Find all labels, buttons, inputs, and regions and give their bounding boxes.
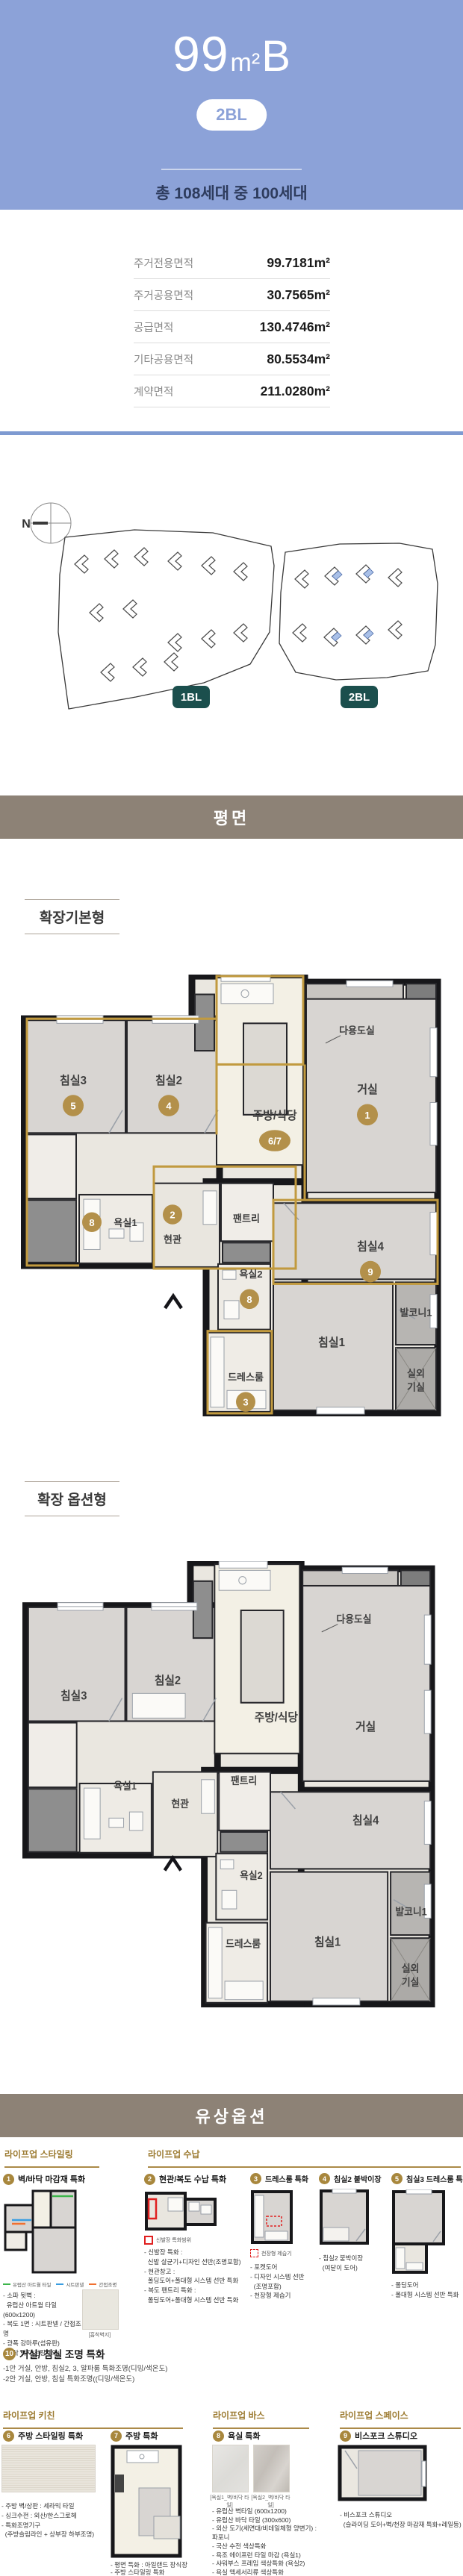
option-item-4: 4 침실2 붙박이장 <box>319 2173 382 2184</box>
option-number-badge: 3 <box>250 2173 261 2184</box>
row-value: 99.7181m² <box>267 255 330 271</box>
room-bed3: 침실3 <box>60 1689 87 1702</box>
room-bath2: 욕실2 <box>240 1870 263 1881</box>
room-living: 거실 <box>357 1084 378 1096</box>
row-label: 기타공용면적 <box>134 351 193 367</box>
room-dress: 드레스룸 <box>228 1372 264 1383</box>
row-label: 주거전용면적 <box>134 255 193 271</box>
mini-plan-entry-storage <box>144 2189 217 2232</box>
room-bed4: 침실4 <box>357 1240 384 1253</box>
option-number-badge: 6 <box>3 2430 14 2442</box>
group-header-bath: 라이프업 바스 <box>213 2409 309 2429</box>
room-outdoor: 실외 <box>407 1367 425 1379</box>
household-count: 총 108세대 중 100세대 <box>0 181 463 204</box>
svg-text:4: 4 <box>166 1101 172 1112</box>
legend-label: 시트판넬 <box>66 2280 84 2288</box>
legend-label: 신발장 특화범위 <box>156 2236 191 2244</box>
room-outdoor: 기실 <box>407 1381 425 1392</box>
svg-text:2BL: 2BL <box>349 691 370 704</box>
option-9-bullets: - 비스포크 스튜디오 (슬라이딩 도어+벽/천장 마감재 특화+레일등) <box>340 2510 463 2530</box>
option-number-badge: 9 <box>340 2430 351 2442</box>
block-badge: 2BL <box>196 99 267 131</box>
option-number-badge: 5 <box>391 2173 403 2184</box>
option-item-7: 7 주방 특화 <box>111 2430 158 2442</box>
option-title: 현관/복도 수납 특화 <box>159 2173 226 2185</box>
option-10-bullets: -1안 거실, 안방, 침실2, 3, 알파룸 특화조명(디밍/색온도) -2안… <box>3 2364 317 2386</box>
header-divider <box>161 169 302 170</box>
option-title: 드레스룸 특화 <box>265 2173 308 2184</box>
mini-plan-bed3-dress <box>391 2189 446 2275</box>
shoe-closet-legend: 신발장 특화범위 <box>144 2236 191 2245</box>
room-balcony: 발코니1 <box>400 1307 432 1318</box>
wallpaper-sample-caption: [흡착벽지] <box>79 2331 120 2339</box>
site-block2-outline <box>279 543 438 680</box>
option-item-6: 6 주방 스타일링 특화 <box>3 2430 83 2442</box>
compass-icon: N <box>22 503 71 543</box>
option-3-bullets: - 포켓도어 - 디자인 시스템 선반 (조명포함) - 천장형 제습기 <box>250 2263 317 2301</box>
plan-option-title: 확장 옵션형 <box>25 1481 119 1516</box>
option-8-bullets: - 유럽산 벽타일 (600x1200) - 유럽산 바닥 타일 (300x60… <box>212 2507 324 2576</box>
room-kitchen: 주방/식당 <box>252 1109 296 1122</box>
wallpaper-sample-image <box>82 2289 119 2330</box>
svg-text:1: 1 <box>364 1110 370 1121</box>
room-living: 거실 <box>355 1721 376 1734</box>
option-title: 벽/바닥 마감재 특화 <box>18 2173 85 2185</box>
option-number-badge: 8 <box>213 2430 224 2442</box>
room-bath1: 욕실1 <box>114 1217 137 1228</box>
svg-text:8: 8 <box>246 1294 252 1305</box>
svg-text:6/7: 6/7 <box>268 1135 282 1146</box>
plan-basic-title: 확장기본형 <box>25 899 119 934</box>
table-row: 주거전용면적 99.7181m² <box>134 247 330 279</box>
option-item-2: 2 현관/복도 수납 특화 <box>144 2173 226 2185</box>
room-pantry: 팬트리 <box>231 1775 257 1786</box>
room-utility: 다용도실 <box>336 1613 371 1625</box>
floor-plan-option: 침실3 침실2 주방/식당 거실 욕실1 현관 팬트리 침실4 욕실2 발코니1… <box>22 1561 435 2007</box>
area-table: 주거전용면적 99.7181m² 주거공용면적 30.7565m² 공급면적 1… <box>134 247 330 407</box>
room-entry: 현관 <box>164 1233 181 1245</box>
unit-size-number: 99 <box>173 25 229 82</box>
option-5-bullets: - 폴딩도어 - 폴대형 시스템 선반 특화 <box>391 2280 462 2300</box>
option-title: 침실2 붙박이장 <box>334 2173 382 2184</box>
site-badge-2bl: 2BL <box>341 686 378 708</box>
dehumidifier-legend: 천장형 제습기 <box>250 2249 292 2257</box>
group-header-styling: 라이프업 스타일링 <box>4 2148 99 2168</box>
room-bath2: 욕실2 <box>239 1269 262 1280</box>
svg-text:8: 8 <box>89 1217 94 1228</box>
table-row: 공급면적 130.4746m² <box>134 311 330 343</box>
option-number-badge: 4 <box>319 2173 330 2184</box>
site-badge-1bl: 1BL <box>173 686 210 708</box>
option-item-3: 3 드레스룸 특화 <box>250 2173 308 2184</box>
group-header-space: 라이프업 스페이스 <box>340 2409 461 2429</box>
kitchen-tile-sample-image <box>1 2445 96 2492</box>
unit-brochure-page: 99 m² B 2BL 총 108세대 중 100세대 주거전용면적 99.71… <box>0 0 463 2576</box>
unit-title: 99 m² B <box>0 25 463 82</box>
svg-text:3: 3 <box>243 1397 248 1408</box>
option-item-5: 5 침실3 드레스룸 특화 <box>391 2173 463 2184</box>
group-header-kitchen: 라이프업 키친 <box>3 2409 183 2429</box>
row-label: 공급면적 <box>134 319 173 335</box>
option-2-bullets: - 신발장 특화 : 신발 살균기+디자인 선반(조명포함) - 현관창고 : … <box>144 2248 249 2305</box>
row-label: 주거공용면적 <box>134 287 193 303</box>
option-number-badge: 10 <box>3 2348 16 2360</box>
svg-text:1BL: 1BL <box>181 691 202 704</box>
bath1-tile-caption: [욕실1_벽/바닥 타일] <box>208 2494 252 2509</box>
svg-text:5: 5 <box>70 1101 75 1112</box>
room-outdoor: 기실 <box>402 1977 419 1988</box>
room-bed1: 침실1 <box>314 1936 341 1948</box>
mini-plan-bed2-closet <box>319 2189 370 2245</box>
mini-plan-finish <box>3 2189 78 2277</box>
table-row: 기타공용면적 80.5534m² <box>134 343 330 375</box>
legend-label: 유럽산 아트월 타일 <box>13 2280 51 2288</box>
option-7-bullets: - 평면 특화 : 아일랜드 장식장 - 주방 스타일링 특화 <box>111 2561 208 2576</box>
room-bed2: 침실2 <box>155 1675 181 1687</box>
bath2-tile-sample-image <box>253 2445 290 2492</box>
unit-type-letter: B <box>261 31 290 81</box>
option-number-badge: 7 <box>111 2430 122 2442</box>
legend-label: 천장형 제습기 <box>261 2250 292 2257</box>
room-bed4: 침실4 <box>352 1814 379 1827</box>
room-bed2: 침실2 <box>155 1075 182 1087</box>
option-item-1: 1 벽/바닥 마감재 특화 <box>3 2173 85 2185</box>
room-balcony: 발코니1 <box>395 1906 426 1917</box>
unit-size-unit: m² <box>231 49 261 78</box>
svg-text:2: 2 <box>170 1209 175 1220</box>
site-block1-outline <box>58 530 274 709</box>
header-banner: 99 m² B 2BL 총 108세대 중 100세대 <box>0 0 463 210</box>
option-title: 주방 특화 <box>125 2430 158 2442</box>
room-entry: 현관 <box>171 1798 188 1810</box>
entrance-arrow-icon <box>165 1296 181 1308</box>
section-divider-bar <box>0 431 463 435</box>
room-bath1: 욕실1 <box>114 1781 137 1792</box>
room-bed3: 침실3 <box>60 1075 87 1087</box>
option-number-badge: 2 <box>144 2174 155 2185</box>
row-label: 계약면적 <box>134 384 173 399</box>
row-value: 211.0280m² <box>261 384 330 399</box>
option-item-8: 8 욕실 특화 <box>213 2430 261 2442</box>
row-value: 30.7565m² <box>267 287 330 303</box>
room-bed1: 침실1 <box>318 1337 345 1349</box>
section-band-plan: 평면 <box>0 795 463 839</box>
section-band-paid-options: 유상옵션 <box>0 2094 463 2137</box>
floor-plan-basic: 침실3 5 침실2 4 주방/식당 6/7 거실 1 8 욕실1 2 현관 팬트… <box>21 975 441 1416</box>
option-item-10: 10 거실/ 침실 조명 특화 <box>3 2346 105 2361</box>
compass-north-label: N <box>22 518 31 531</box>
bath2-tile-caption: [욕실2_벽/바닥 타일] <box>249 2494 293 2509</box>
room-kitchen: 주방/식당 <box>255 1710 298 1724</box>
finish-legend: 유럽산 아트월 타일 시트판넬 간접조명 <box>3 2280 116 2288</box>
option-title: 욕실 특화 <box>228 2430 261 2442</box>
option-4-bullets: - 침실2 붙박이장 (여닫이 도어) <box>319 2254 386 2273</box>
option-number-badge: 1 <box>3 2174 14 2185</box>
option-item-9: 9 비스포크 스튜디오 <box>340 2430 417 2442</box>
svg-text:9: 9 <box>367 1266 373 1278</box>
room-dress: 드레스룸 <box>226 1938 261 1949</box>
site-plan: N <box>22 457 441 710</box>
option-title: 비스포크 스튜디오 <box>355 2430 417 2442</box>
room-outdoor: 실외 <box>402 1962 419 1974</box>
table-row: 계약면적 211.0280m² <box>134 375 330 407</box>
row-value: 80.5534m² <box>267 351 330 367</box>
group-header-storage: 라이프업 수납 <box>148 2148 461 2168</box>
plan-structure <box>24 975 438 1416</box>
entrance-arrow-icon <box>165 1858 181 1870</box>
option-title: 주방 스타일링 특화 <box>18 2430 83 2442</box>
bath1-tile-sample-image <box>212 2445 249 2492</box>
option-title: 거실/ 침실 조명 특화 <box>19 2346 105 2361</box>
row-value: 130.4746m² <box>260 319 330 335</box>
mini-plan-dressroom <box>250 2189 293 2245</box>
option-6-bullets: - 주방 벽/상판 : 세라믹 타일 - 싱크수전 : 외산/한스그로헤 - 특… <box>1 2501 106 2539</box>
table-row: 주거공용면적 30.7565m² <box>134 279 330 311</box>
mini-plan-bespoke-studio <box>338 2445 427 2501</box>
legend-label: 간접조명 <box>99 2280 116 2288</box>
mini-plan-kitchen <box>111 2445 182 2558</box>
option-title: 침실3 드레스룸 특화 <box>406 2173 463 2184</box>
room-utility: 다용도실 <box>339 1025 375 1036</box>
room-pantry: 팬트리 <box>233 1213 260 1225</box>
